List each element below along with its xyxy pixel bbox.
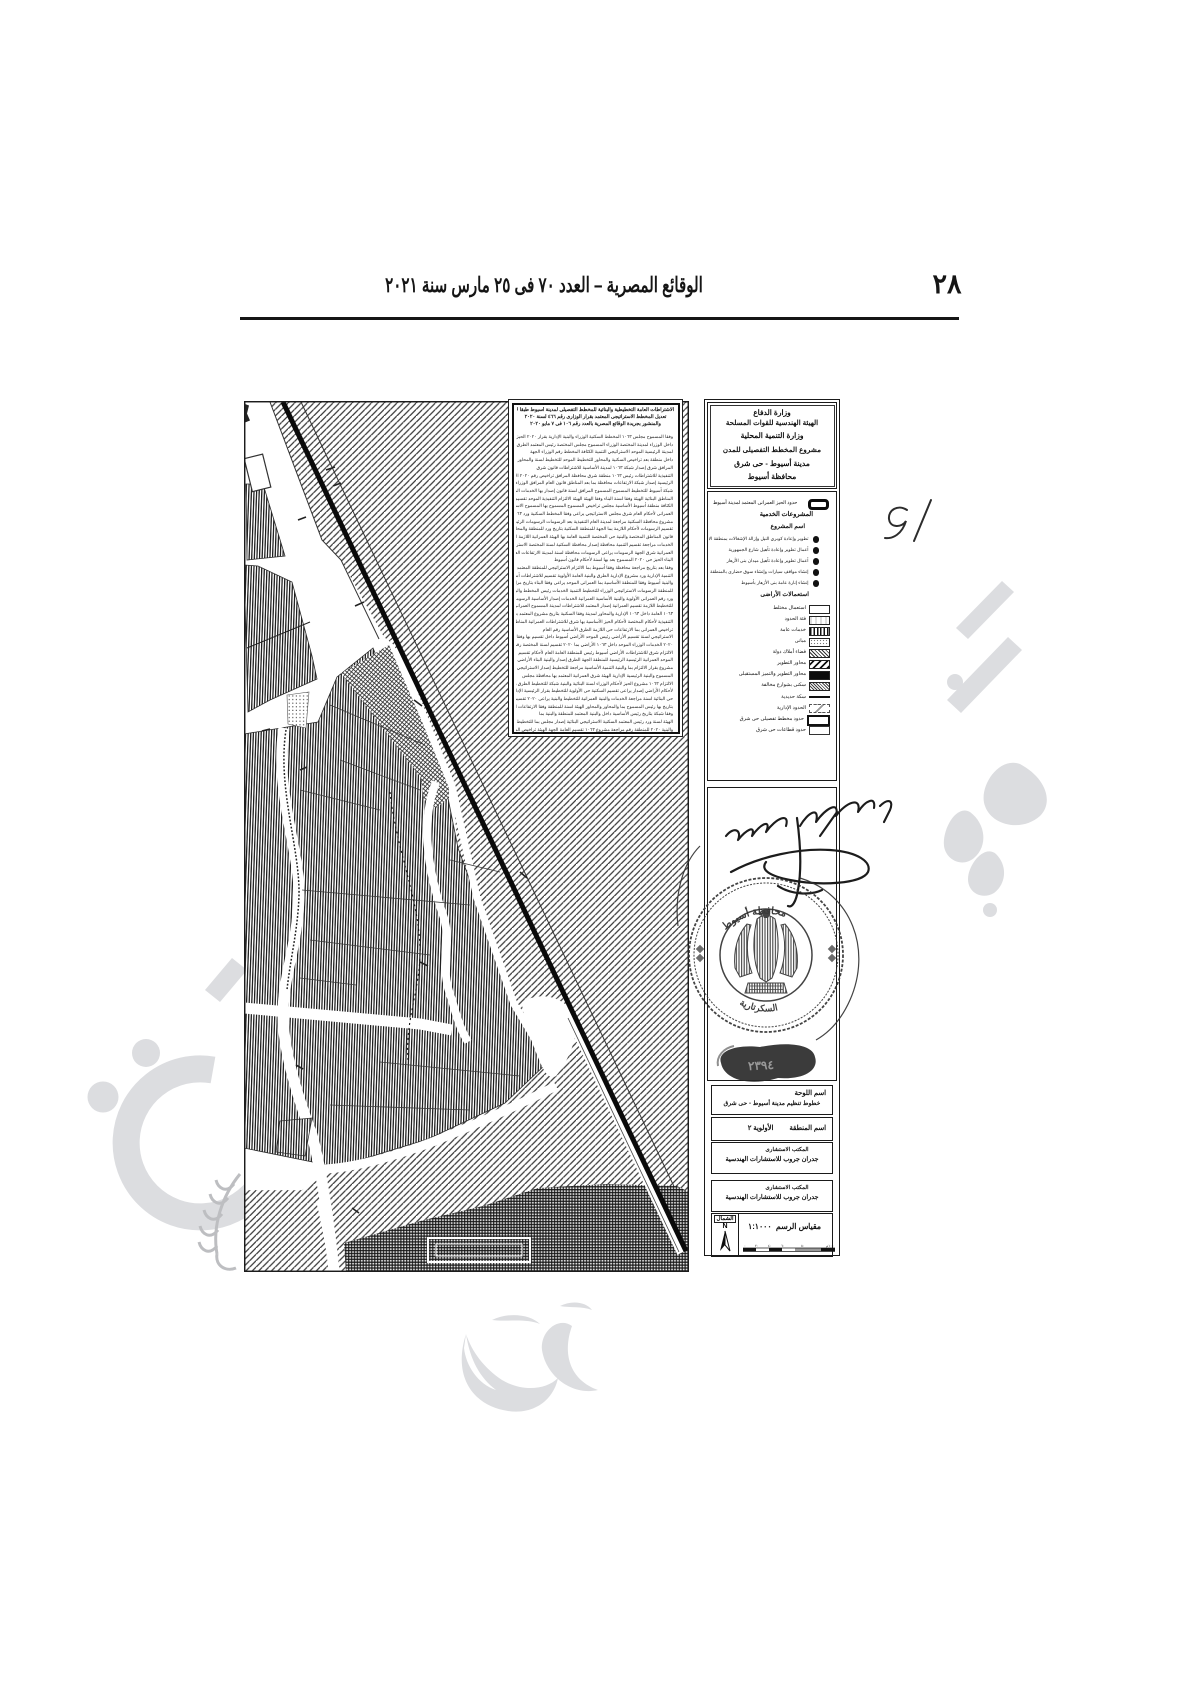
svg-text:٢٣٩٤: ٢٣٩٤ <box>748 1058 774 1073</box>
svg-text:محافظة أسيوط: محافظة أسيوط <box>720 906 788 933</box>
